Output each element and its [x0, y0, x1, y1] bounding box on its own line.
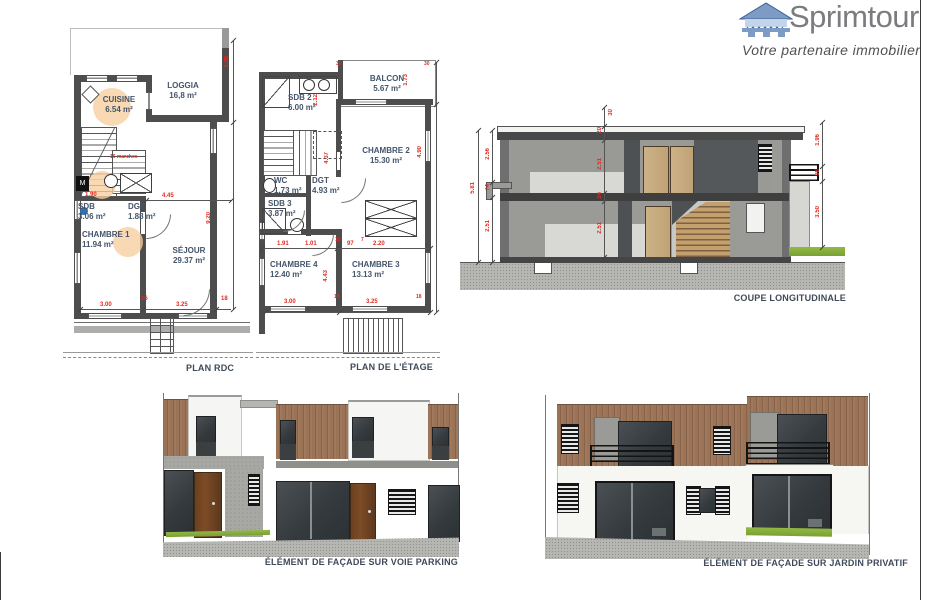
dim-text: 2.20 — [373, 241, 385, 247]
loggia-boundary-line — [70, 28, 71, 75]
dim-text: 18 — [334, 295, 340, 300]
louver-shutter — [557, 483, 579, 513]
room-name: DGT — [312, 176, 352, 186]
room-label-chambre4: CHAMBRE 4 12.40 m² — [270, 260, 326, 279]
window-opening — [270, 307, 306, 311]
shaft-cross — [365, 218, 417, 237]
room-label-loggia: LOGGIA 16,8 m² — [152, 81, 214, 100]
wall-segment — [222, 28, 229, 48]
dim-text: 16 marches — [110, 155, 138, 160]
room-area: 29.37 m² — [158, 256, 220, 266]
room-name: SDB — [78, 202, 118, 212]
section-door — [670, 146, 694, 195]
room-name: DGT — [128, 202, 168, 212]
dim-line — [262, 248, 430, 249]
dim-text: 1.96 — [815, 134, 821, 146]
room-area: 3.06 m² — [78, 212, 118, 222]
window-guardrail — [280, 444, 296, 460]
dim-tick — [231, 307, 237, 313]
wall-segment — [146, 115, 229, 122]
shower — [262, 76, 290, 108]
basin-circle — [318, 79, 330, 91]
ground-line — [256, 352, 440, 353]
room-area: 6.00 m² — [288, 103, 332, 113]
window-opening — [355, 100, 387, 104]
window-guardrail — [352, 441, 374, 458]
room-name: BALCON — [352, 74, 422, 84]
room-label-dgt: DGT 1.88 m² — [128, 202, 168, 221]
fixture-circle — [104, 174, 118, 188]
base-slab — [500, 257, 791, 263]
dim-text: 2.51 — [597, 222, 603, 234]
room-area: 3.87 m² — [268, 209, 308, 219]
ground-line — [63, 352, 253, 353]
window-glass — [428, 485, 460, 542]
room-area: 16,8 m² — [152, 91, 214, 101]
room-label-balcon: BALCON 5.67 m² — [352, 74, 422, 93]
room-name: CHAMBRE 2 — [350, 146, 422, 156]
louver-shutter — [561, 424, 579, 454]
room-name: CHAMBRE 3 — [352, 260, 408, 270]
glazed-bay — [276, 481, 350, 542]
dim-text: 18 — [221, 296, 228, 302]
wood-cladding — [164, 399, 188, 457]
dim-text: 24 — [597, 192, 603, 199]
footing — [534, 262, 552, 274]
room-label-cuisine: CUISINE 6.54 m² — [94, 95, 144, 114]
dim-text: 4.43 — [323, 270, 329, 282]
dim-text: 1.91 — [277, 241, 289, 247]
window-opening — [426, 252, 430, 284]
window-glass — [280, 420, 296, 446]
mullion — [788, 476, 790, 529]
loggia-boundary-line — [70, 28, 228, 29]
window-glass — [432, 427, 449, 448]
grass-strip — [746, 527, 832, 537]
dim-text: 3.00 — [100, 302, 112, 308]
wall-segment — [259, 72, 265, 334]
section-partition — [618, 201, 632, 257]
window-guardrail — [432, 446, 449, 460]
appliance-box: M — [76, 176, 89, 191]
room-area: 5.67 m² — [352, 84, 422, 94]
room-label-chambre2: CHAMBRE 2 15.30 m² — [350, 146, 422, 165]
dim-line — [436, 62, 437, 312]
shaft-cross — [120, 173, 152, 193]
dim-text: 30 — [608, 109, 614, 116]
room-label-sdb2: SDB 2 6.00 m² — [288, 93, 332, 112]
dim-tick — [434, 310, 440, 316]
section-window — [746, 203, 765, 233]
dim-text: 2.56 — [485, 148, 491, 160]
dim-line — [822, 122, 823, 248]
dim-text: 97 — [347, 241, 354, 247]
window-opening — [88, 314, 122, 318]
room-area: 15.30 m² — [350, 156, 422, 166]
dim-text: 3.25 — [176, 302, 188, 308]
room-label-sdb: SDB 3.06 m² — [78, 202, 118, 221]
room-label-wc: WC 1.73 m² — [274, 176, 304, 195]
stair-winder — [263, 130, 295, 176]
upper-dark-room — [694, 140, 758, 193]
page-border-right — [920, 0, 921, 600]
dim-text: 74 — [485, 184, 491, 191]
dim-text: 4.90 — [417, 146, 423, 158]
dim-text: 20 — [597, 127, 603, 134]
room-area: 6.54 m² — [94, 105, 144, 115]
page-edge-mark — [0, 552, 1, 600]
floor-slab — [500, 193, 791, 201]
logo-name: Sprimtour — [789, 1, 919, 32]
glass-reflection — [652, 528, 666, 536]
room-name: WC — [274, 176, 304, 186]
room-area: 13.13 m² — [352, 270, 408, 280]
room-area: 1.88 m² — [128, 212, 168, 222]
room-label-chambre3: CHAMBRE 3 13.13 m² — [352, 260, 408, 279]
footing — [680, 262, 698, 274]
room-name: SDB 2 — [288, 93, 332, 103]
balcony-railing — [746, 442, 830, 464]
facade-frame-line — [869, 393, 870, 555]
dim-text: 98 — [815, 169, 821, 176]
upper-light-strip — [772, 140, 782, 193]
dim-text: 9.20 — [206, 212, 212, 224]
room-label-dgt2: DGT 4.93 m² — [312, 176, 352, 195]
section-door — [645, 206, 671, 259]
dim-text: 7 — [361, 238, 364, 243]
facade-jardin-caption: ÉLÉMENT DE FAÇADE SUR JARDIN PRIVATIF — [688, 558, 908, 568]
dim-line — [146, 200, 232, 201]
room-label-sejour: SÉJOUR 29.37 m² — [158, 246, 220, 265]
mullion — [631, 483, 633, 539]
window-opening — [116, 76, 138, 81]
door-handle — [212, 502, 215, 505]
entry-door — [350, 483, 376, 542]
door-handle — [368, 510, 371, 513]
room-name: SÉJOUR — [158, 246, 220, 256]
dim-text: 1.01 — [305, 241, 317, 247]
basin-circle — [303, 79, 315, 91]
window-opening — [211, 128, 216, 154]
dim-line — [233, 40, 234, 310]
dim-text: 1.73 — [403, 74, 409, 86]
facade-parking-caption: ÉLÉMENT DE FAÇADE SUR VOIE PARKING — [250, 557, 458, 567]
window-glass — [164, 470, 194, 536]
limit-dashed-line — [256, 357, 440, 358]
coupe-caption: COUPE LONGITUDINALE — [700, 293, 846, 303]
garden-wall — [789, 181, 810, 250]
louver-shutter — [248, 474, 260, 506]
entry-door — [194, 472, 222, 538]
plan-rdc-caption: PLAN RDC — [186, 363, 234, 373]
window-opening — [86, 76, 108, 81]
louver-shutter — [715, 486, 730, 515]
window-opening — [352, 307, 388, 311]
balcony-railing — [590, 445, 674, 466]
coping — [240, 400, 278, 408]
dim-text: 16 — [141, 296, 148, 302]
dim-line — [265, 312, 430, 313]
room-name: SDB 3 — [268, 199, 308, 209]
dim-text: 3.98 — [224, 56, 230, 68]
room-area: 12.40 m² — [270, 270, 326, 280]
dim-text: 4.45 — [162, 193, 174, 199]
dim-text: 4.37 — [324, 152, 330, 164]
room-area: 4.93 m² — [312, 186, 352, 196]
room-name: CUISINE — [94, 95, 144, 105]
lower-roof-hatch — [343, 318, 403, 354]
plan-etage-caption: PLAN DE L'ÉTAGE — [350, 362, 433, 372]
dim-text: 3.00 — [284, 299, 296, 305]
room-label-chambre1: CHAMBRE 1 11.94 m² — [82, 230, 138, 249]
dim-text: 3.25 — [366, 299, 378, 305]
dim-text: 2.12 — [313, 94, 319, 106]
window-opening — [75, 252, 80, 284]
dim-text: 5.81 — [470, 182, 476, 194]
dim-line — [478, 130, 479, 263]
room-name: CHAMBRE 1 — [82, 230, 138, 240]
glass-reflection — [808, 519, 822, 527]
grass-section — [789, 247, 845, 256]
dim-text: 30 — [336, 62, 342, 67]
upper-floor-light-patch — [530, 172, 625, 193]
slab-edge — [276, 461, 458, 468]
architect-sheet: Sprimtour Votre partenaire immobilier M … — [0, 0, 926, 600]
dim-text: 1.90 — [85, 192, 97, 198]
exterior-stair — [150, 318, 174, 354]
room-area: 11.94 m² — [82, 240, 138, 250]
dim-text: 2.51 — [485, 220, 491, 232]
section-door — [643, 146, 669, 195]
logo-tagline: Votre partenaire immobilier — [742, 42, 920, 58]
louver-shutter — [713, 426, 731, 455]
limit-dashed-line — [63, 357, 253, 358]
dim-text: 18 — [416, 295, 422, 300]
mullion — [310, 482, 312, 539]
room-area: 1.73 m² — [274, 186, 304, 196]
dim-text: 30 — [424, 62, 430, 67]
dim-line — [80, 309, 231, 310]
window-glass — [352, 417, 374, 443]
room-name: LOGGIA — [152, 81, 214, 91]
shaft-cross — [365, 200, 417, 219]
logo-house-icon — [739, 2, 793, 38]
section-partition — [624, 140, 640, 193]
room-label-sdb3: SDB 3 3.87 m² — [268, 199, 308, 218]
dim-text: 16 — [335, 238, 341, 243]
window-glass — [196, 416, 216, 444]
louver-shutter — [388, 489, 416, 515]
roof-slab — [497, 132, 803, 140]
dim-line — [604, 107, 605, 257]
facade-frame-line — [545, 395, 546, 555]
ground-section — [460, 262, 845, 290]
dim-text: 3.50 — [815, 206, 821, 218]
room-name: CHAMBRE 4 — [270, 260, 326, 270]
window-opening — [426, 130, 430, 162]
dim-text: 2.51 — [597, 158, 603, 170]
window-opening — [260, 258, 264, 286]
